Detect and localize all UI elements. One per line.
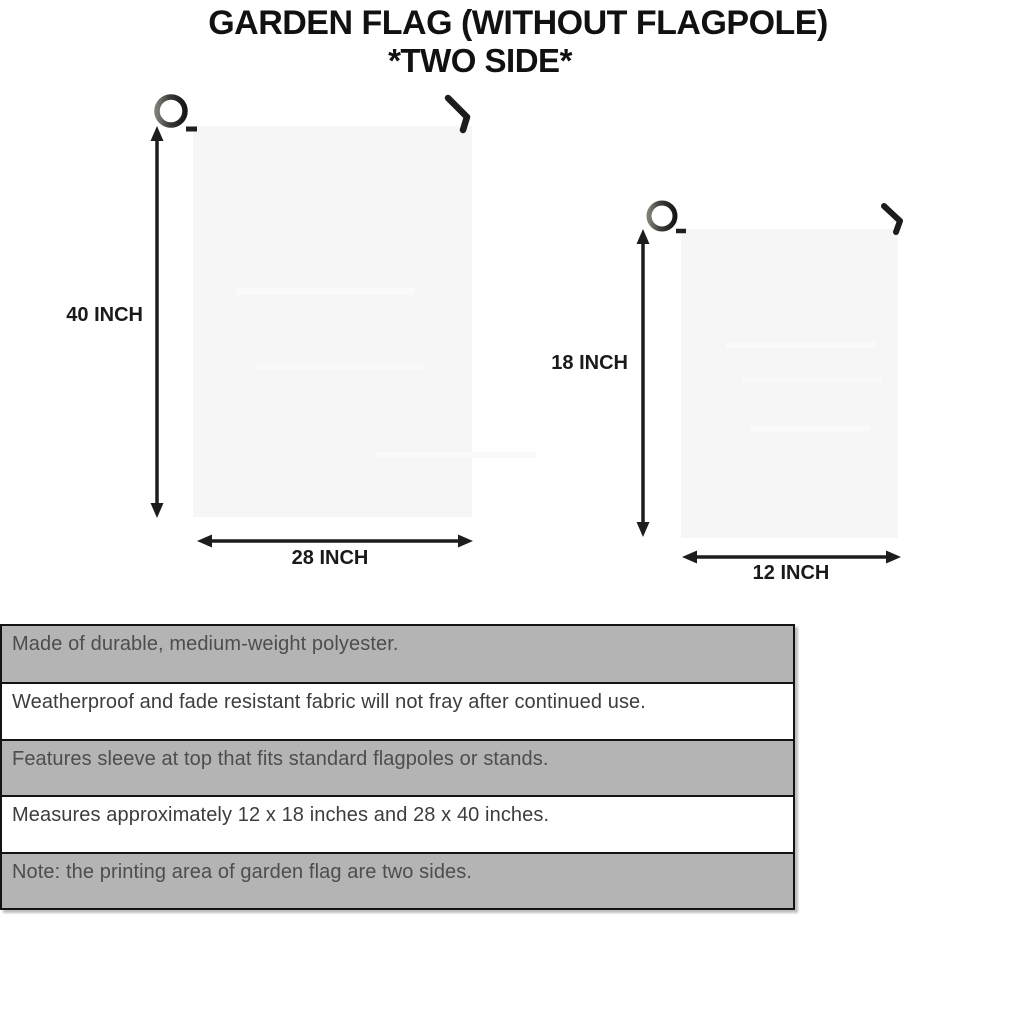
small-flag-fabric-sheen <box>750 426 870 431</box>
small-flag-group <box>637 203 902 618</box>
small-flag-hook <box>884 206 900 232</box>
large-flag-hook <box>448 98 467 130</box>
small-flag-height-label: 18 INCH <box>518 352 628 375</box>
large-flag-width-label: 28 INCH <box>275 547 385 570</box>
feature-row: Weatherproof and fade resistant fabric w… <box>2 682 793 738</box>
features-table: Made of durable, medium-weight polyester… <box>0 624 795 910</box>
large-flag-pole-loop <box>157 97 185 125</box>
small-flag-pole-loop <box>649 203 675 229</box>
large-flag-fabric-sheen <box>376 452 536 458</box>
small-flag-fabric <box>681 229 898 538</box>
feature-row: Features sleeve at top that fits standar… <box>2 739 793 795</box>
large-flag-width-arrow <box>197 535 473 548</box>
feature-row: Note: the printing area of garden flag a… <box>2 852 793 908</box>
large-flag-fabric <box>193 126 472 517</box>
feature-row: Measures approximately 12 x 18 inches an… <box>2 795 793 851</box>
small-flag-fabric-sheen <box>726 342 876 348</box>
feature-row: Made of durable, medium-weight polyester… <box>2 626 793 682</box>
large-flag-group <box>151 97 537 618</box>
large-flag-fabric-sheen <box>256 364 424 370</box>
garden-flag-infographic: GARDEN FLAG (WITHOUT FLAGPOLE) *TWO SIDE… <box>0 0 1024 1024</box>
large-flag-height-label: 40 INCH <box>33 304 143 327</box>
large-flag-fabric-sheen <box>236 288 414 295</box>
small-flag-width-label: 12 INCH <box>736 562 846 585</box>
large-flag-height-arrow <box>151 126 164 518</box>
small-flag-height-arrow <box>637 229 650 537</box>
small-flag-fabric-sheen <box>742 378 882 383</box>
